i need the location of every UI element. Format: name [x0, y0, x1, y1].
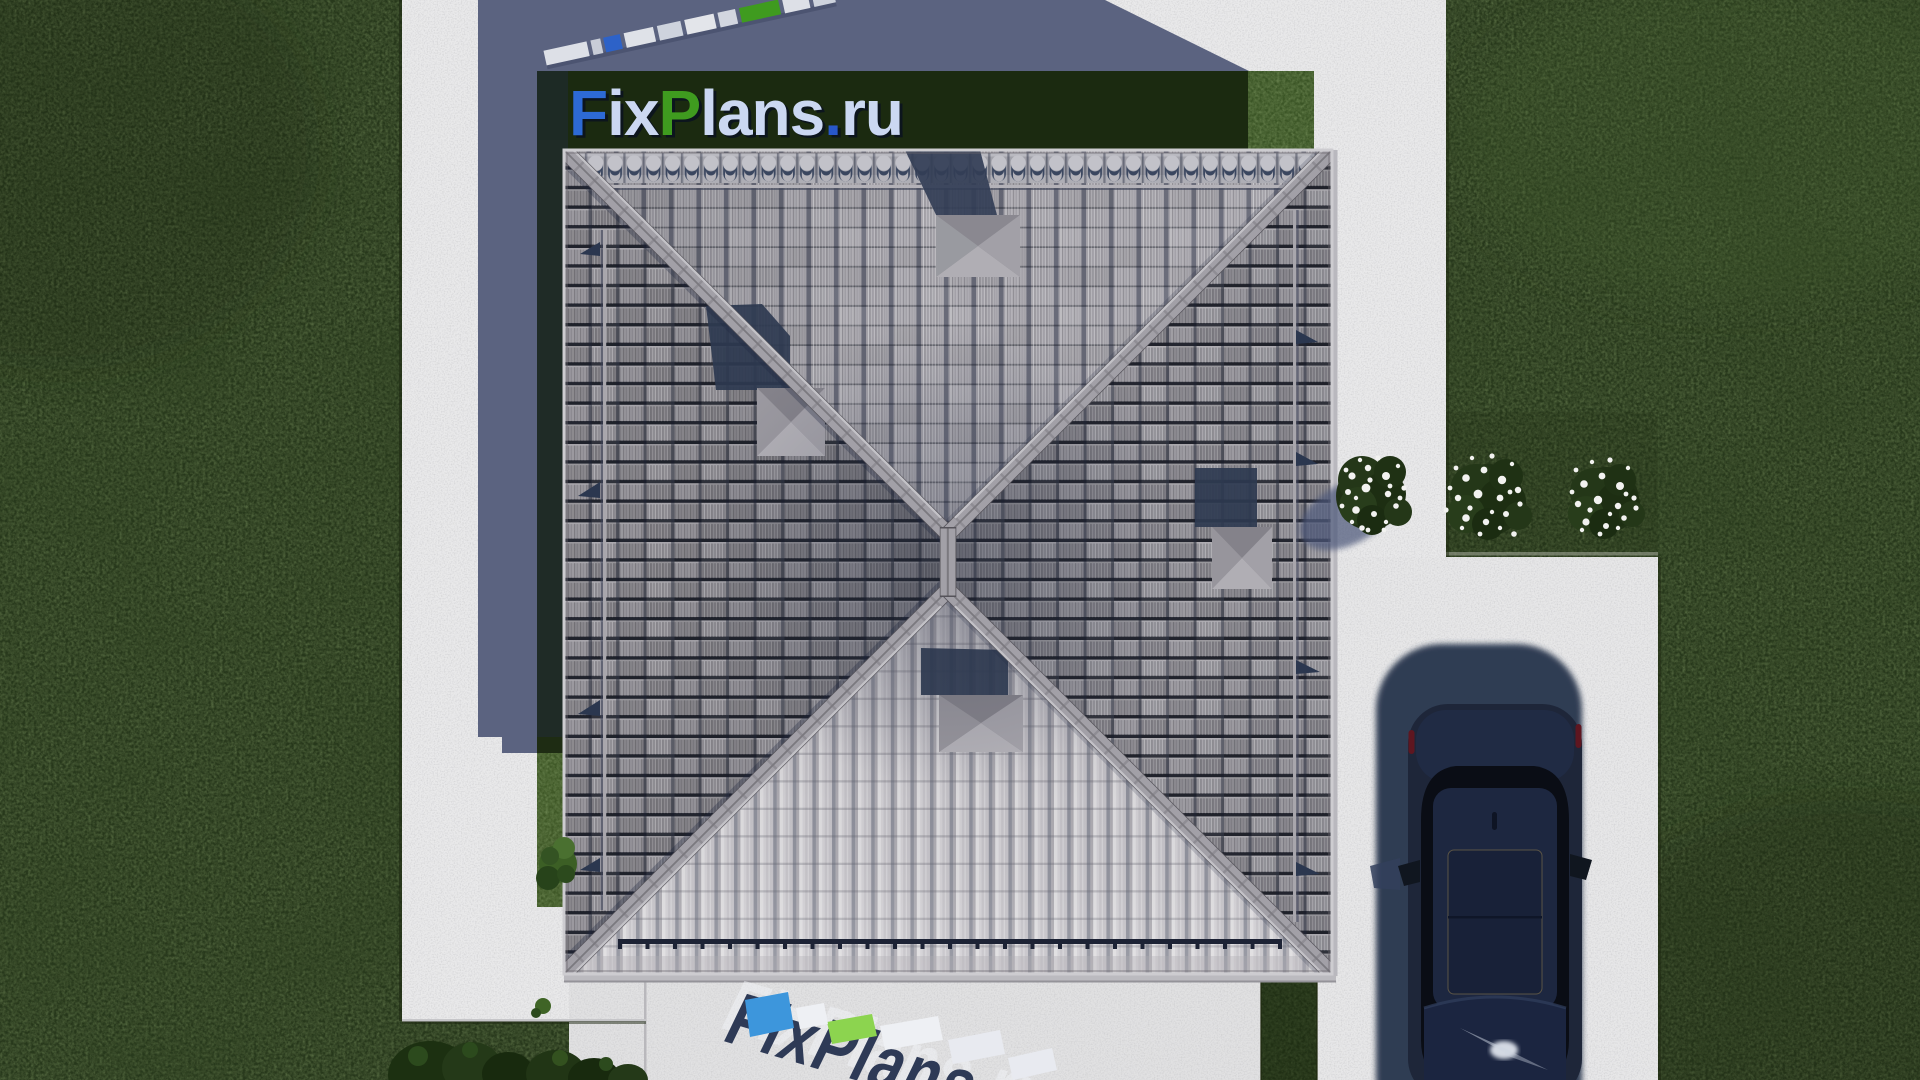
svg-text:FixPlans.ru: FixPlans.ru: [569, 77, 903, 149]
